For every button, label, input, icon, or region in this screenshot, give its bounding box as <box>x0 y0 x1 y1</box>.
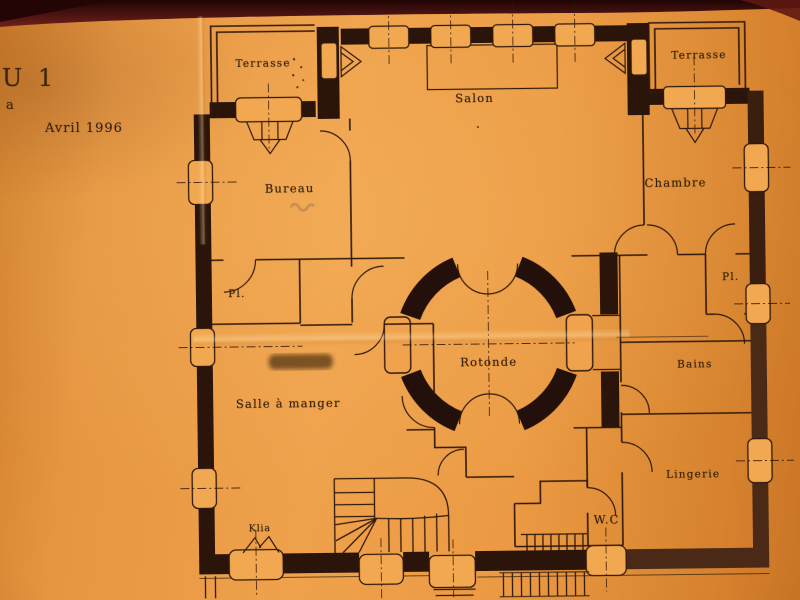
room-label-lingerie: Lingerie <box>666 468 720 481</box>
room-label-salon: Salon <box>455 91 494 105</box>
room-label-closet-right: Pl. <box>722 271 740 283</box>
room-label-bureau: Bureau <box>265 181 315 196</box>
room-label-bains: Bains <box>677 358 713 370</box>
floor-plan: Terrasse Terrasse Salon Bureau Chambre P… <box>0 0 800 600</box>
room-label-wc: W.C <box>594 512 620 526</box>
floor-plan-photo: U 1 a Avril 1996 <box>0 0 800 600</box>
floor-plan-drawing <box>0 0 800 600</box>
room-label-rotonde: Rotonde <box>460 355 517 370</box>
rotunda <box>384 263 594 426</box>
room-label-salle-a-manger: Salle à manger <box>236 396 341 411</box>
room-label-chambre: Chambre <box>644 175 706 190</box>
room-label-closet-left: Pl. <box>228 288 246 300</box>
windows <box>187 22 774 591</box>
room-label-terrasse-right: Terrasse <box>671 49 726 62</box>
room-label-terrasse-left: Terrasse <box>235 57 290 70</box>
room-label-klia: Klia <box>249 523 271 534</box>
